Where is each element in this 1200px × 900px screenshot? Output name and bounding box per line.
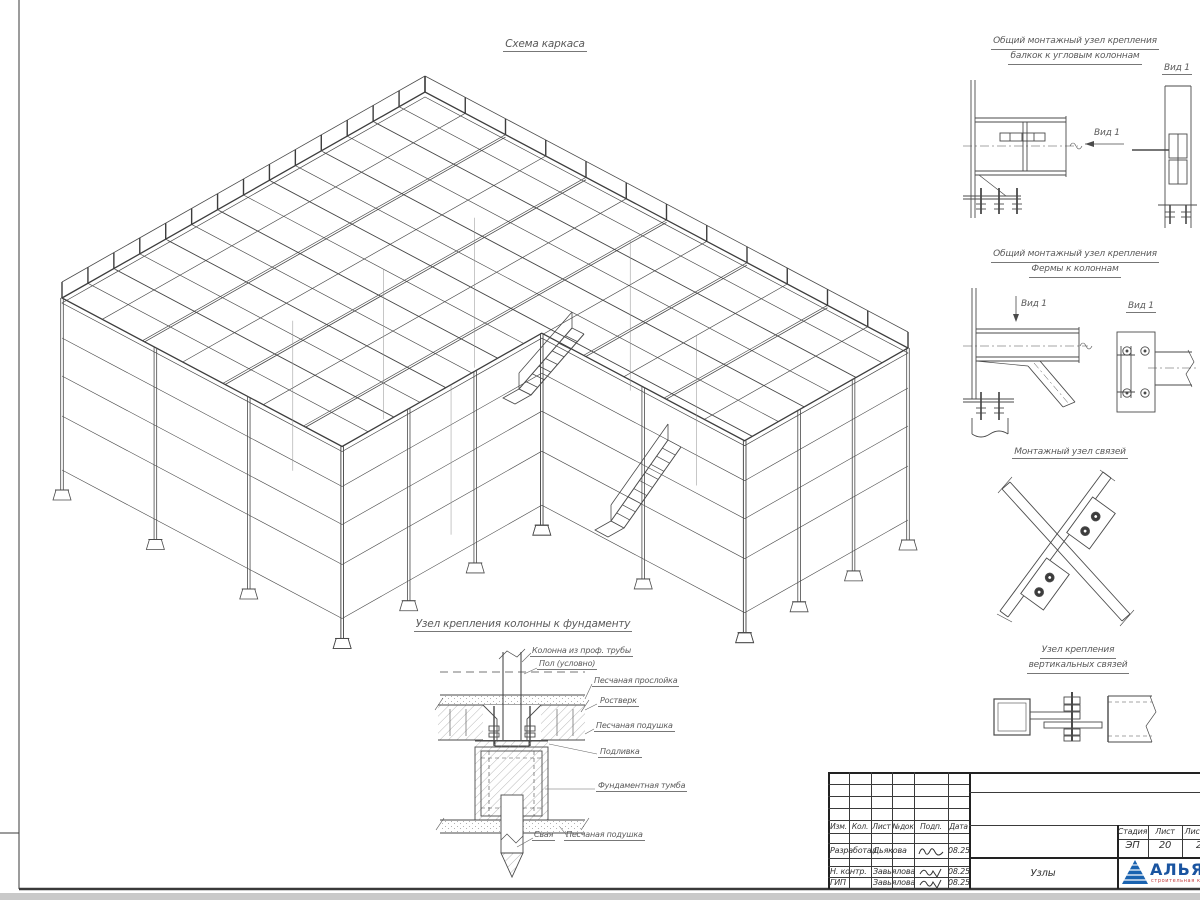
detail4-title: Узел крепления вертикальных связей [978, 644, 1178, 674]
tb-date-developer: 08.25 [948, 846, 969, 855]
foundation-detail-drawing [435, 649, 597, 877]
detail1-view-label: Вид 1 [1162, 63, 1192, 75]
outside-sheet-area [0, 893, 1200, 900]
detail2-title: Общий монтажный узел крепления Фермы к к… [950, 248, 1200, 278]
detail-beam-to-corner-column-drawing [963, 80, 1197, 228]
detail-vertical-bracing-drawing [994, 692, 1156, 742]
foundation-label-column: Колонна из проф. трубы [530, 646, 633, 657]
detail3-title: Монтажный узел связей [960, 447, 1180, 459]
main-view-title: Схема каркаса [420, 38, 670, 52]
drawing-sheet: Схема каркаса Общий монтажный узел крепл… [0, 0, 1200, 900]
tb-sheets-label: Листов [1182, 827, 1200, 836]
detail1-view-arrow-label: Вид 1 [1094, 128, 1120, 138]
foundation-label-sand-cushion-bottom: Песчаная подушка [564, 830, 645, 841]
foundation-label-sand-layer: Песчаная прослойка [592, 676, 679, 687]
signature-gip [917, 877, 947, 888]
tb-date-ncontr: 08.25 [948, 867, 969, 876]
foundation-title: Узел крепления колонны к фундаменту [398, 618, 648, 632]
tb-role-gip: ГИП [830, 878, 846, 887]
signature-ncontr [917, 866, 947, 877]
tb-role-ncontr: Н. контр. [830, 867, 867, 876]
tb-header-list: Лист [871, 822, 892, 831]
detail2-view-label: Вид 1 [1126, 301, 1156, 313]
main-frame-isometric-drawing [53, 76, 917, 648]
tb-header-data: Дата [948, 822, 969, 831]
foundation-label-floor: Пол (условно) [537, 659, 597, 670]
company-tagline: строительная компания [1151, 878, 1200, 884]
foundation-label-pile: Свая [532, 830, 555, 841]
tb-doc-title: Узлы [969, 868, 1117, 879]
tb-header-podp: Подп. [914, 822, 948, 831]
tb-stage-value: ЭП [1117, 840, 1148, 851]
detail-bracing-node-drawing [997, 470, 1134, 626]
tb-header-ndok: №док [892, 822, 914, 831]
tb-name-gip: Завьялова [873, 878, 915, 887]
tb-stage-label: Стадия [1117, 827, 1148, 836]
company-logo-icon [1121, 858, 1151, 886]
tb-name-developer: Дьякова [873, 846, 907, 855]
foundation-label-grout: Подливка [598, 747, 642, 758]
tb-date-gip: 08.25 [948, 878, 969, 887]
tb-role-developer: Разработал [830, 846, 876, 855]
tb-sheet-value: 20 [1148, 840, 1182, 851]
detail2-view-arrow-label: Вид 1 [1021, 299, 1047, 309]
tb-header-izm: Изм. [828, 822, 849, 831]
company-name: АЛЬЯНС [1150, 860, 1200, 879]
foundation-label-grillage: Ростверк [598, 696, 639, 707]
tb-sheet-label: Лист [1148, 827, 1182, 836]
tb-header-kol: Кол. [849, 822, 871, 831]
detail1-title: Общий монтажный узел крепления балкок к … [950, 35, 1200, 65]
tb-name-ncontr: Завьялова [873, 867, 915, 876]
tb-sheets-value: 2 [1182, 840, 1200, 851]
foundation-label-sand-cushion: Песчаная подушка [594, 721, 675, 732]
foundation-label-pedestal: Фундаментная тумба [596, 781, 687, 792]
signature-developer [915, 843, 949, 857]
detail-truss-to-column-drawing [963, 288, 1198, 437]
